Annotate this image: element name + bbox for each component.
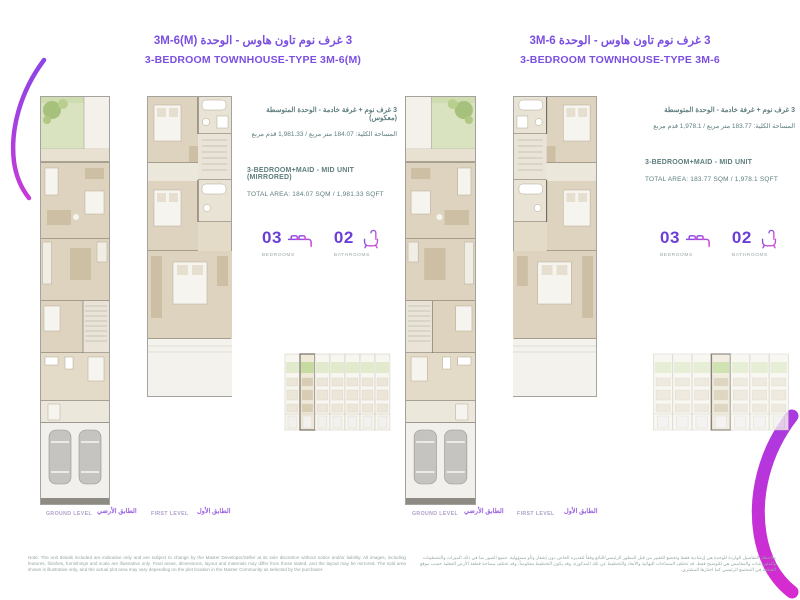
ground-level-label-ar: الطابق الأرضي <box>97 507 137 515</box>
unit-area-arabic: المساحة الكلية: 183.77 متر مربع / 1,978.… <box>645 122 795 130</box>
unit-title-english: 3-BEDROOM TOWNHOUSE-TYPE 3M-6 <box>470 54 770 66</box>
unit-title-arabic: 3 غرف نوم تاون هاوس - الوحدة 3M-6(M) <box>103 33 403 47</box>
first-level-label-en: FIRST LEVEL <box>517 511 555 517</box>
unit-type-arabic: 3 غرف نوم + غرفة خادمة - الوحدة المتوسطة <box>645 106 795 114</box>
bathrooms-label: BATHROOMS <box>732 253 782 258</box>
first-level-label-en: FIRST LEVEL <box>151 511 189 517</box>
bedrooms-label: BEDROOMS <box>660 253 710 258</box>
first-floorplan-right <box>513 96 597 397</box>
bathtub-icon <box>358 228 384 249</box>
bedrooms-count: 03 <box>262 228 282 248</box>
first-level-label-ar: الطابق الأول <box>564 507 598 515</box>
unit-type-english: 3-BEDROOM+MAID - MID UNIT (MIRRORED) <box>247 167 397 181</box>
unit-right-header: 3 غرف نوم تاون هاوس - الوحدة 3M-6 3-BEDR… <box>470 33 770 66</box>
ground-floorplan-left <box>40 96 110 505</box>
unit-right-info: 3 غرف نوم + غرفة خادمة - الوحدة المتوسطة… <box>645 106 795 183</box>
unit-area-english: TOTAL AREA: 184.07 SQM / 1,981.33 SQFT <box>247 191 397 198</box>
ground-level-label-ar: الطابق الأرضي <box>464 507 504 515</box>
unit-area-english: TOTAL AREA: 183.77 SQM / 1,978.1 SQFT <box>645 176 795 183</box>
bathtub-icon <box>756 228 782 249</box>
ground-level-label-en: GROUND LEVEL <box>46 511 92 517</box>
site-keyplan-left <box>283 352 392 432</box>
bedrooms-stat: 03 BEDROOMS <box>660 228 710 258</box>
bed-icon <box>684 228 710 249</box>
ground-floorplan-right <box>405 96 476 505</box>
first-floorplan-left <box>147 96 232 397</box>
unit-area-arabic: المساحة الكلية: 184.07 متر مربع / 1,981.… <box>247 130 397 138</box>
unit-title-arabic: 3 غرف نوم تاون هاوس - الوحدة 3M-6 <box>470 33 770 47</box>
bathrooms-label: BATHROOMS <box>334 253 384 258</box>
disclaimer-arabic: ملاحظة: التفاصيل الواردة للوحدة هي إرشاد… <box>408 555 776 574</box>
unit-type-english: 3-BEDROOM+MAID - MID UNIT <box>645 159 795 166</box>
bed-icon <box>286 228 312 249</box>
bathrooms-count: 02 <box>334 228 354 248</box>
unit-left-info: 3 غرف نوم + غرفة خادمة - الوحدة المتوسطة… <box>247 106 397 198</box>
bedrooms-count: 03 <box>660 228 680 248</box>
unit-type-arabic: 3 غرف نوم + غرفة خادمة - الوحدة المتوسطة… <box>247 106 397 122</box>
bathrooms-count: 02 <box>732 228 752 248</box>
bathrooms-stat: 02 BATHROOMS <box>732 228 782 258</box>
unit-left-stats: 03 BEDROOMS 02 <box>262 228 384 258</box>
brochure-page: 3 غرف نوم تاون هاوس - الوحدة 3M-6(M) 3-B… <box>0 0 800 600</box>
bedrooms-label: BEDROOMS <box>262 253 312 258</box>
bathrooms-stat: 02 BATHROOMS <box>334 228 384 258</box>
bedrooms-stat: 03 BEDROOMS <box>262 228 312 258</box>
site-keyplan-right <box>651 352 791 432</box>
ground-level-label-en: GROUND LEVEL <box>412 511 458 517</box>
unit-left-header: 3 غرف نوم تاون هاوس - الوحدة 3M-6(M) 3-B… <box>103 33 403 66</box>
first-level-label-ar: الطابق الأول <box>197 507 231 515</box>
unit-title-english: 3-BEDROOM TOWNHOUSE-TYPE 3M-6(M) <box>103 54 403 66</box>
unit-right-stats: 03 BEDROOMS 02 <box>660 228 782 258</box>
disclaimer-english: Note: The unit details included are indi… <box>28 555 406 574</box>
